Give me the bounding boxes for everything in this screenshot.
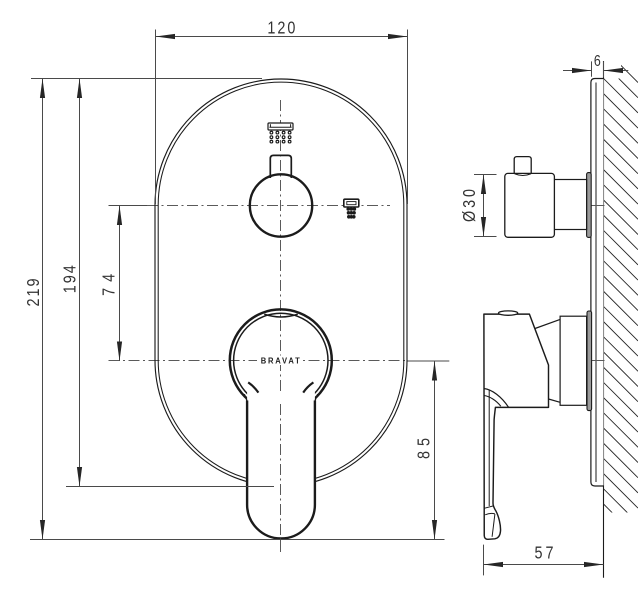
- svg-text:6: 6: [594, 52, 601, 70]
- svg-text:Ø30: Ø30: [459, 189, 479, 222]
- svg-text:120: 120: [267, 18, 295, 38]
- svg-text:194: 194: [60, 265, 80, 293]
- svg-text:219: 219: [24, 279, 44, 307]
